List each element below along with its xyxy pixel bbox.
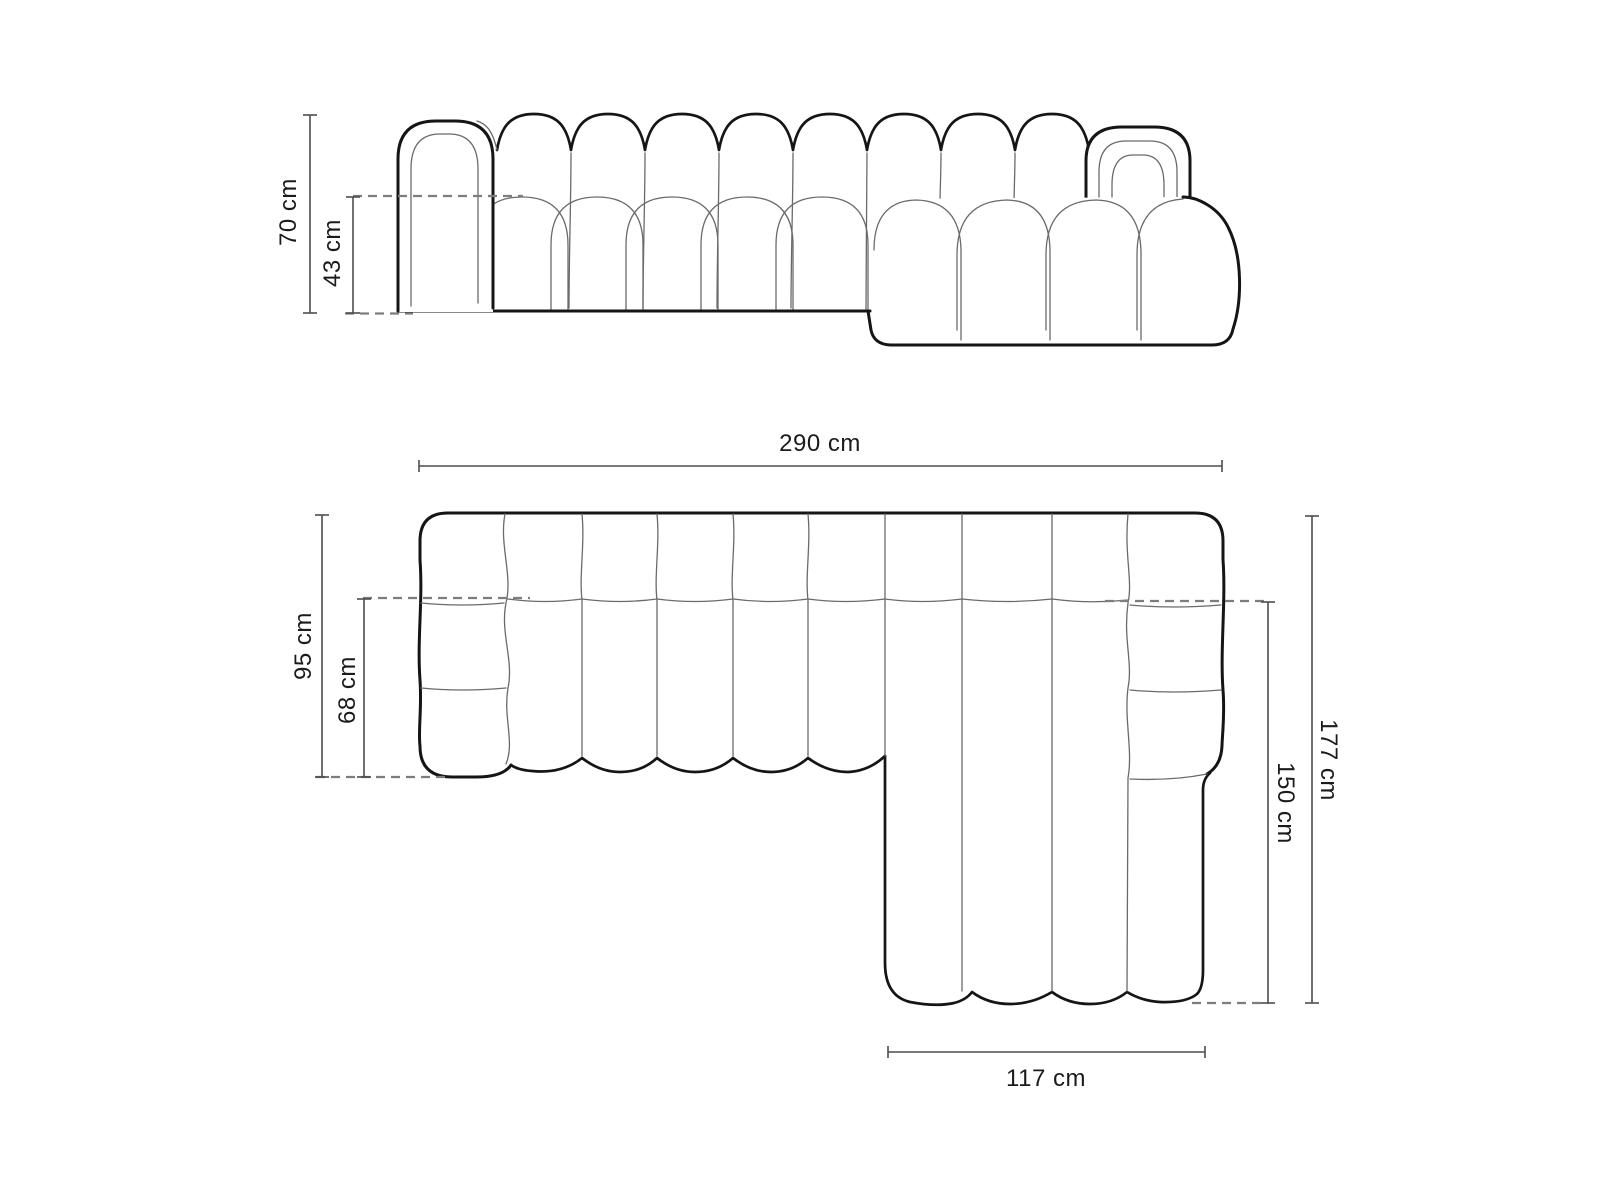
plan-seat-depth-label: 68 cm <box>334 656 361 724</box>
plan-front-edge-scallops <box>511 756 885 772</box>
plan-back-seat-boundary <box>508 599 1128 602</box>
plan-dimensions: 290 cm 95 cm 68 cm <box>290 430 1342 1092</box>
top-plan-view: 290 cm 95 cm 68 cm <box>290 430 1342 1092</box>
plan-chaise-width-dimension: 117 cm <box>888 1046 1205 1092</box>
plan-interior-lines <box>421 514 1221 991</box>
front-back-cushions-outline <box>497 114 1089 150</box>
dimension-diagram: 70 cm 43 cm <box>0 0 1600 1200</box>
plan-chaise-length-dimension: 150 cm <box>1261 602 1299 1003</box>
plan-total-width-dimension: 290 cm <box>419 430 1222 472</box>
plan-total-depth-dimension: 177 cm <box>1305 516 1342 1003</box>
plan-chaise-length-label: 150 cm <box>1272 762 1299 844</box>
plan-total-width-label: 290 cm <box>779 430 861 457</box>
plan-left-armrest-boundary <box>503 514 509 764</box>
front-total-height-label: 70 cm <box>275 178 302 246</box>
plan-total-depth-label: 177 cm <box>1315 719 1342 801</box>
front-total-height-dimension: 70 cm <box>275 115 317 313</box>
sofa-dimension-drawing: 70 cm 43 cm <box>0 0 1600 1200</box>
plan-outer-outline <box>419 513 1224 1005</box>
front-seat-cushions <box>476 197 868 311</box>
front-seat-height-dimension: 43 cm <box>319 197 360 313</box>
plan-chaise-width-label: 117 cm <box>1006 1065 1086 1092</box>
plan-seat-depth-dimension: 68 cm <box>334 599 371 777</box>
plan-depth-dimension: 95 cm <box>290 515 329 777</box>
front-elevation-view: 70 cm 43 cm <box>275 114 1240 345</box>
front-left-armrest <box>398 121 493 312</box>
plan-chaise-outline <box>885 756 1210 1005</box>
front-seat-height-label: 43 cm <box>319 219 346 287</box>
plan-right-armrest-boundary <box>1127 514 1130 991</box>
plan-depth-label: 95 cm <box>290 612 317 680</box>
front-chaise-block <box>868 197 1240 345</box>
